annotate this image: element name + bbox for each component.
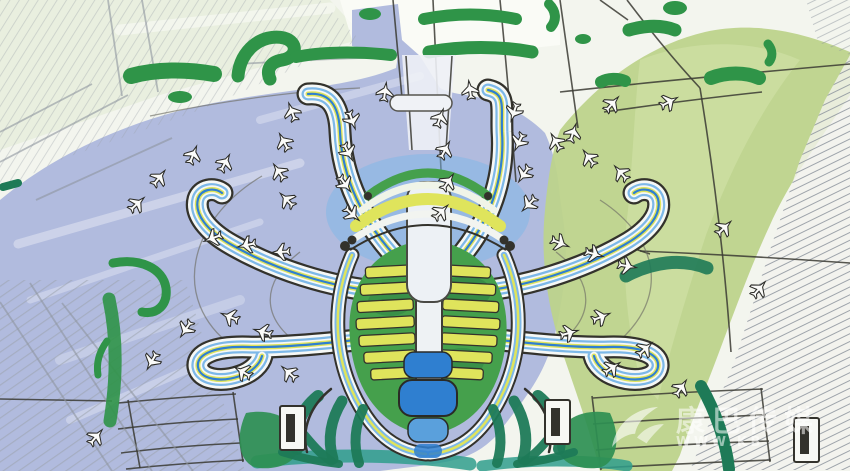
spine-blue-upper <box>404 352 452 378</box>
service-building <box>280 406 305 450</box>
sketch-page: 康巴传媒 WWW.KB <box>0 0 850 471</box>
airport-plan-sketch <box>0 0 850 471</box>
service-building <box>794 418 819 462</box>
spine-blue-lower <box>408 418 448 442</box>
service-building <box>545 400 570 444</box>
spine-blue-main <box>399 380 457 416</box>
